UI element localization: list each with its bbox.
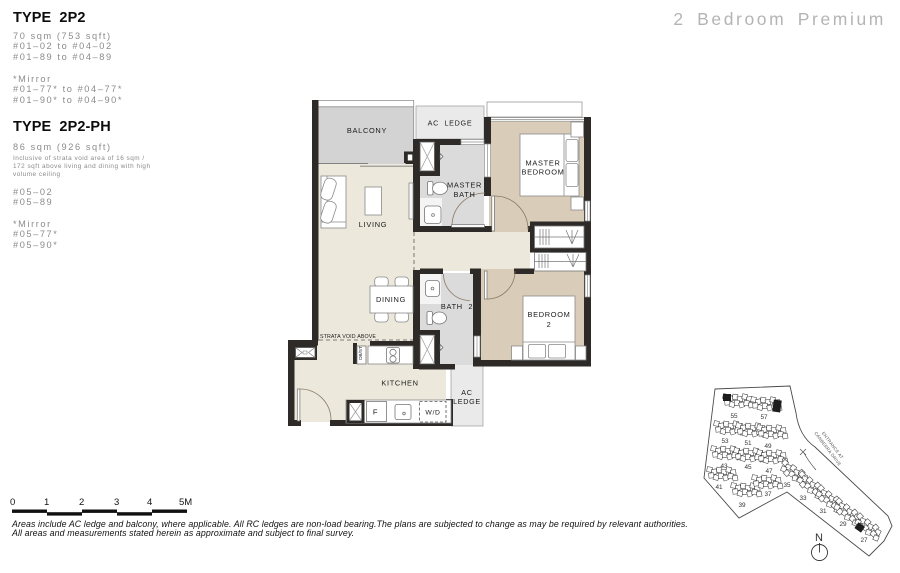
svg-text:LEDGE: LEDGE — [453, 397, 481, 406]
svg-text:49: 49 — [764, 443, 772, 450]
svg-text:41: 41 — [715, 484, 723, 491]
svg-text:2: 2 — [547, 320, 552, 329]
svg-text:N: N — [815, 532, 823, 544]
svg-text:45: 45 — [744, 464, 752, 471]
svg-text:BALCONY: BALCONY — [347, 126, 387, 135]
svg-text:5M: 5M — [179, 497, 192, 508]
svg-text:1: 1 — [44, 497, 49, 508]
svg-text:AC: AC — [461, 388, 472, 397]
svg-text:37: 37 — [764, 491, 772, 498]
svg-text:35: 35 — [783, 482, 791, 489]
svg-text:55: 55 — [730, 413, 738, 420]
svg-text:AC LEDGE: AC LEDGE — [428, 119, 473, 128]
svg-text:0: 0 — [10, 497, 15, 508]
svg-text:MASTER: MASTER — [526, 159, 561, 168]
svg-text:BEDROOM: BEDROOM — [521, 168, 564, 177]
svg-text:F: F — [373, 408, 378, 417]
svg-text:29: 29 — [839, 521, 847, 528]
svg-text:51: 51 — [744, 440, 752, 447]
svg-text:KITCHEN: KITCHEN — [381, 379, 418, 388]
svg-text:STRATA VOID ABOVE: STRATA VOID ABOVE — [320, 334, 376, 340]
svg-text:33: 33 — [799, 495, 807, 502]
svg-text:BEDROOM: BEDROOM — [527, 310, 570, 319]
svg-text:57: 57 — [760, 414, 768, 421]
svg-text:W/D: W/D — [425, 410, 440, 417]
svg-text:BATH: BATH — [454, 190, 476, 199]
svg-text:BATH 2: BATH 2 — [441, 302, 473, 311]
svg-text:2: 2 — [79, 497, 84, 508]
svg-text:39: 39 — [738, 502, 746, 509]
svg-text:47: 47 — [765, 468, 773, 475]
svg-text:DINING: DINING — [376, 295, 406, 304]
svg-text:MASTER: MASTER — [447, 181, 482, 190]
svg-text:53: 53 — [721, 438, 729, 445]
svg-text:LIVING: LIVING — [359, 220, 387, 229]
svg-text:31: 31 — [819, 508, 827, 515]
svg-text:27: 27 — [860, 537, 868, 544]
svg-text:3: 3 — [114, 497, 119, 508]
svg-text:DB/ST: DB/ST — [358, 346, 363, 360]
svg-text:4: 4 — [147, 497, 152, 508]
